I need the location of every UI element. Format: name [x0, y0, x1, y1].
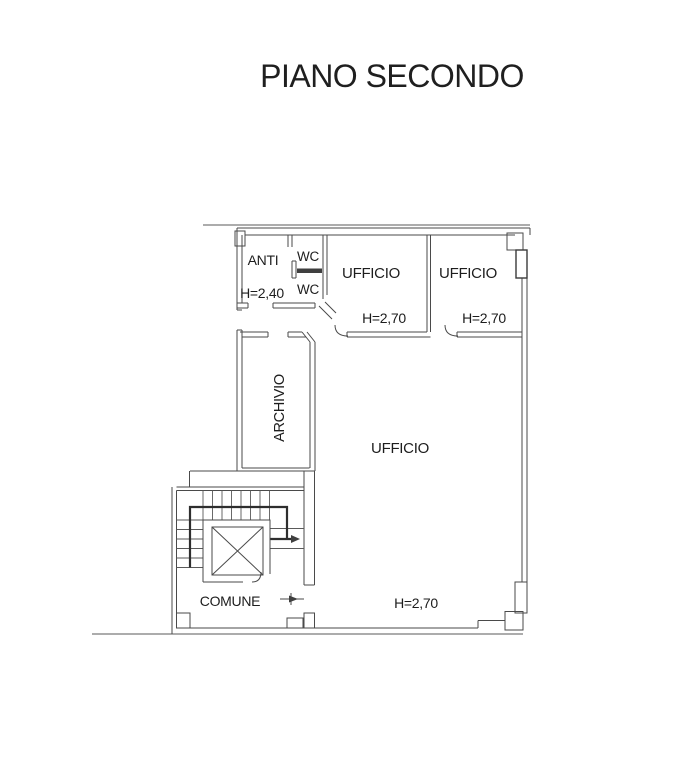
stair-direction-arrow: [291, 535, 300, 543]
room-label-wc-upper: WC: [297, 249, 319, 264]
comune-wall-stub: [304, 613, 315, 628]
wc-divider-wall: [297, 269, 322, 274]
comune-door-arrow: [289, 596, 298, 603]
anti-ufficio-divider: [323, 235, 327, 299]
stair-handrail: [190, 507, 296, 568]
bottom-left-corner-block: [177, 613, 191, 628]
right-wall-lower-block: [515, 582, 527, 613]
room-label-ufficio-left: UFFICIO: [342, 265, 400, 282]
ufficio-left-door-swing: [335, 325, 348, 336]
top-right-pillar: [507, 233, 523, 250]
bottom-right-pillar: [505, 612, 523, 631]
floor-plan-drawing: ANTI H=2,40 WC WC UFFICIO H=2,70 UFFICIO…: [0, 0, 684, 768]
elevator-x-cross: [212, 527, 263, 575]
comune-small-block: [287, 618, 303, 628]
room-height-anti: H=2,40: [240, 285, 284, 301]
room-height-ufficio-right: H=2,70: [462, 310, 506, 326]
wc-door-leaf: [292, 261, 296, 278]
staircase: [177, 491, 305, 568]
room-label-ufficio-main: UFFICIO: [371, 440, 429, 457]
anti-bottom-wall: [237, 303, 315, 308]
archivio-right-wall: [310, 342, 315, 471]
corridor-door-swing: [319, 302, 336, 319]
room-label-wc-lower: WC: [297, 282, 319, 297]
floor-plan-page: PIANO SECONDO: [0, 0, 684, 768]
ufficio-right-bottom-wall: [457, 332, 522, 337]
right-wall: [522, 250, 527, 582]
comune-right-wall: [304, 471, 315, 585]
stair-treads-vertical: [203, 491, 270, 521]
left-wall-lower: [172, 487, 177, 634]
stairwell-top-wall: [177, 487, 305, 491]
elevator: [203, 520, 270, 582]
bottom-wall: [177, 621, 506, 629]
top-wall: [237, 228, 530, 235]
room-label-ufficio-right: UFFICIO: [439, 265, 497, 282]
archivio-top-wall: [240, 332, 306, 337]
room-height-ufficio-left: H=2,70: [362, 310, 406, 326]
wc-partition-stub: [288, 235, 292, 247]
ufficio-right-door-swing: [445, 325, 458, 336]
room-label-archivio: ARCHIVIO: [272, 374, 288, 442]
right-wall-upper-block: [516, 250, 527, 278]
room-height-ufficio-main: H=2,70: [394, 595, 438, 611]
ufficio-left-bottom-wall: [347, 332, 431, 337]
ufficio-divider: [427, 235, 431, 332]
left-wall-upper: [237, 228, 242, 471]
room-label-comune: COMUNE: [200, 593, 260, 609]
left-step-wall: [190, 468, 316, 487]
room-label-anti: ANTI: [248, 252, 279, 268]
